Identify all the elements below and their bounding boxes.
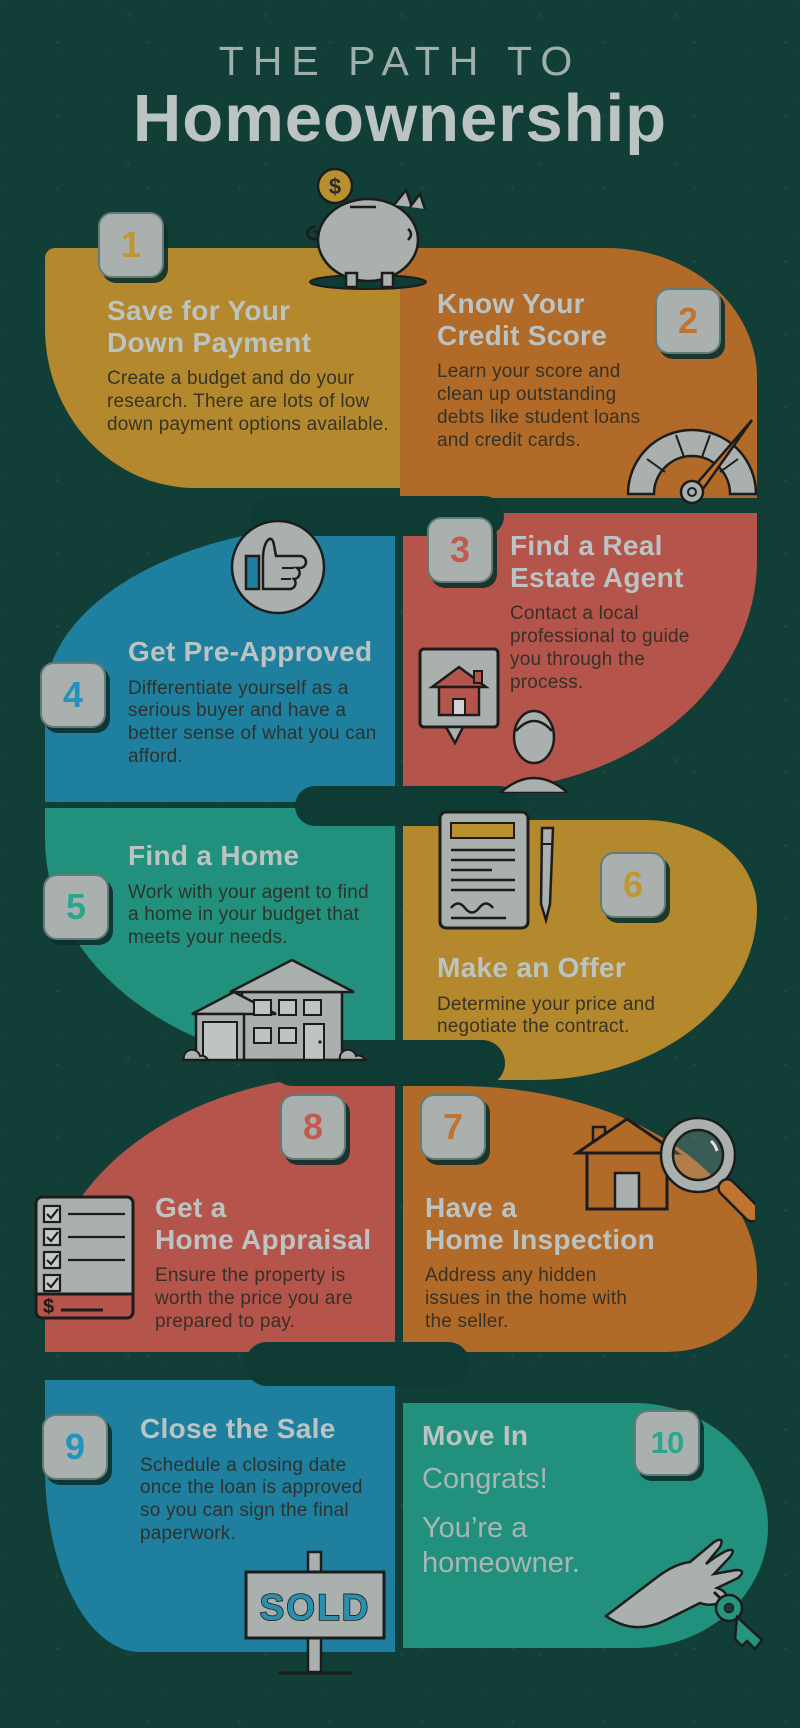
step1-text: Save for Your Down Payment Create a budg… [107, 295, 407, 437]
step1-number: 1 [121, 224, 141, 266]
step8-text: Get a Home Appraisal Ensure the property… [155, 1192, 400, 1334]
coin-currency-label: $ [329, 174, 341, 199]
step6-number: 6 [623, 864, 643, 906]
step6-text: Make an Offer Determine your price and n… [437, 952, 717, 1039]
step5-number: 5 [66, 886, 86, 928]
step4-number: 4 [63, 674, 83, 716]
step8-body: Ensure the property is worth the price y… [155, 1265, 390, 1333]
step9-body: Schedule a closing date once the loan is… [140, 1455, 388, 1546]
hand-with-key-icon [598, 1524, 773, 1652]
sold-sign-label: SOLD [260, 1587, 371, 1628]
step9-number: 9 [65, 1426, 85, 1468]
step10-number-badge: 10 [634, 1410, 700, 1476]
appraisal-currency-label: $ [43, 1296, 54, 1318]
step9-text: Close the Sale Schedule a closing date o… [140, 1413, 400, 1546]
step2-body: Learn your score and clean up outstandin… [437, 361, 642, 452]
step7-body: Address any hidden issues in the home wi… [425, 1265, 633, 1333]
step2-number-badge: 2 [655, 288, 721, 354]
step4-body: Differentiate yourself as a serious buye… [128, 678, 396, 769]
house-magnifier-icon [565, 1105, 755, 1230]
path-connector-4 [245, 1342, 470, 1386]
step4-number-badge: 4 [40, 662, 106, 728]
step10-congrats: Congrats! [422, 1462, 652, 1497]
step1-title: Save for Your Down Payment [107, 295, 407, 358]
thumbs-up-badge-icon [222, 510, 334, 625]
step9-title: Close the Sale [140, 1413, 400, 1445]
step8-title: Get a Home Appraisal [155, 1192, 400, 1255]
step3-title: Find a Real Estate Agent [510, 530, 710, 593]
step5-title: Find a Home [128, 840, 388, 872]
step7-number: 7 [443, 1106, 463, 1148]
house-icon [182, 952, 367, 1067]
step6-title: Make an Offer [437, 952, 717, 984]
step4-title: Get Pre-Approved [128, 636, 408, 668]
homeownership-infographic: THE PATH TO Homeownership 1 2 3 4 5 6 7 … [0, 0, 800, 1728]
step2-title: Know Your Credit Score [437, 288, 652, 351]
step5-number-badge: 5 [43, 874, 109, 940]
step6-number-badge: 6 [600, 852, 666, 918]
contract-pen-icon [436, 808, 566, 934]
step8-number: 8 [303, 1106, 323, 1148]
step2-number: 2 [678, 300, 698, 342]
page-title: Homeownership [0, 80, 800, 157]
step7-number-badge: 7 [420, 1094, 486, 1160]
step5-body: Work with your agent to find a home in y… [128, 882, 373, 950]
step1-number-badge: 1 [98, 212, 164, 278]
step5-text: Find a Home Work with your agent to find… [128, 840, 388, 950]
piggy-bank-icon: $ [290, 165, 430, 290]
appraisal-checklist-icon: $ [33, 1194, 136, 1321]
sold-sign-icon: SOLD [240, 1550, 390, 1676]
step8-number-badge: 8 [280, 1094, 346, 1160]
step6-body: Determine your price and negotiate the c… [437, 994, 705, 1040]
step9-number-badge: 9 [42, 1414, 108, 1480]
step10-number: 10 [651, 1425, 683, 1461]
title-kicker: THE PATH TO [0, 38, 800, 85]
step3-number-badge: 3 [427, 517, 493, 583]
step10-title: Move In [422, 1420, 652, 1452]
step4-text: Get Pre-Approved Differentiate yourself … [128, 636, 408, 769]
step1-body: Create a budget and do your research. Th… [107, 368, 399, 436]
credit-gauge-icon [620, 402, 772, 504]
step3-number: 3 [450, 529, 470, 571]
real-estate-agent-icon [416, 645, 576, 793]
